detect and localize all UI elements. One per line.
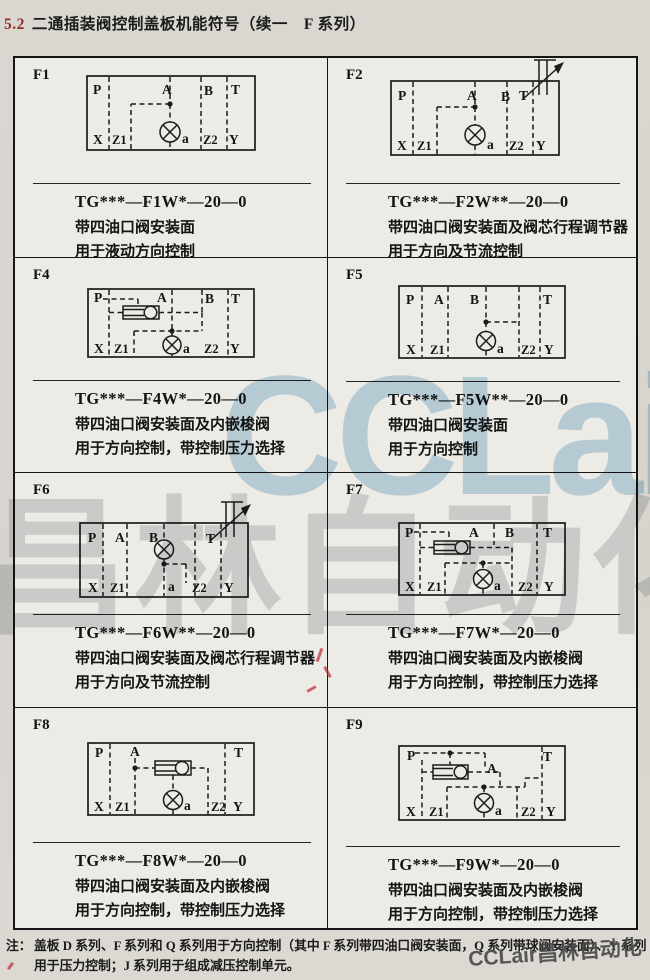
port-label-a: A bbox=[115, 530, 125, 545]
port-label-z1: Z1 bbox=[114, 342, 129, 356]
footnote-body: 盖板 D 系列、F 系列和 Q 系列用于方向控制（其中 F 系列带四油口阀安装面… bbox=[34, 936, 648, 976]
port-label-z2: Z2 bbox=[518, 580, 533, 594]
port-label-b: B bbox=[470, 292, 479, 307]
port-label-y: Y bbox=[229, 132, 239, 147]
cell-f9: F9 bbox=[328, 708, 636, 928]
cell-divider bbox=[346, 381, 620, 382]
cell-f4: F4 P bbox=[15, 258, 328, 473]
cell-id-label: F4 bbox=[33, 267, 50, 284]
f8-schematic: P A T X Z1 a Z2 Y bbox=[86, 741, 256, 817]
port-label-x: X bbox=[405, 579, 415, 594]
port-label-p: P bbox=[407, 748, 415, 763]
port-label-p: P bbox=[93, 82, 101, 97]
port-label-z1: Z1 bbox=[430, 343, 445, 357]
port-label-y: Y bbox=[233, 799, 243, 814]
port-label-z2: Z2 bbox=[521, 805, 536, 819]
cell-id-label: F1 bbox=[33, 67, 50, 84]
port-label-z1: Z1 bbox=[427, 580, 442, 594]
cell-text: TG***—F8W*—20—0 带四油口阀安装面及内嵌梭阀 用于方向控制，带控制… bbox=[75, 851, 285, 923]
pilot-label: a bbox=[183, 341, 190, 356]
model-code: TG***—F4W*—20—0 bbox=[75, 389, 285, 409]
pilot-label: a bbox=[487, 137, 494, 152]
function-symbol-table: F1 P A B T X Z1 a Z2 bbox=[13, 56, 638, 930]
port-label-t: T bbox=[543, 749, 552, 764]
desc-line-1: 带四油口阀安装面及内嵌梭阀 bbox=[75, 413, 285, 437]
port-label-y: Y bbox=[230, 341, 240, 356]
cell-id-label: F2 bbox=[346, 67, 363, 84]
port-label-t: T bbox=[543, 292, 552, 307]
f7-schematic: P A B T X Z1 a Z2 Y bbox=[397, 521, 567, 597]
port-label-b: B bbox=[204, 83, 213, 98]
f4-schematic: P A B T X Z1 a Z2 Y bbox=[86, 287, 256, 359]
port-label-z1: Z1 bbox=[429, 805, 444, 819]
port-label-z2: Z2 bbox=[211, 800, 226, 814]
port-label-t: T bbox=[231, 291, 240, 306]
cell-divider bbox=[346, 183, 620, 184]
cell-f6: F6 P A B bbox=[15, 473, 328, 708]
cell-text: TG***—F1W*—20—0 带四油口阀安装面 用于液动方向控制 bbox=[75, 192, 247, 264]
cell-f5: F5 P A B T X Z1 a Z2 bbox=[328, 258, 636, 473]
port-label-x: X bbox=[94, 799, 104, 814]
cell-id-label: F7 bbox=[346, 482, 363, 499]
port-label-y: Y bbox=[536, 138, 546, 153]
port-label-b: B bbox=[149, 530, 158, 545]
port-label-a: A bbox=[487, 761, 497, 776]
port-label-x: X bbox=[94, 341, 104, 356]
cell-text: TG***—F5W**—20—0 带四油口阀安装面 用于方向控制 bbox=[388, 390, 569, 462]
port-label-p: P bbox=[95, 745, 103, 760]
port-label-z2: Z2 bbox=[521, 343, 536, 357]
port-label-a: A bbox=[469, 525, 479, 540]
port-label-y: Y bbox=[224, 580, 234, 595]
port-label-x: X bbox=[406, 342, 416, 357]
desc-line-2: 用于方向控制，带控制压力选择 bbox=[388, 903, 598, 927]
cell-id-label: F9 bbox=[346, 717, 363, 734]
f6-schematic: P A B T X Z1 a Z2 Y bbox=[78, 497, 264, 599]
pilot-label: a bbox=[497, 341, 504, 356]
cell-f7: F7 P A bbox=[328, 473, 636, 708]
desc-line-2: 用于方向控制，带控制压力选择 bbox=[75, 899, 285, 923]
desc-line-2: 用于方向控制，带控制压力选择 bbox=[388, 671, 598, 695]
port-label-z1: Z1 bbox=[110, 581, 125, 595]
port-label-a: A bbox=[162, 82, 172, 97]
cell-f2: F2 P A B bbox=[328, 58, 636, 258]
cell-text: TG***—F9W*—20—0 带四油口阀安装面及内嵌梭阀 用于方向控制，带控制… bbox=[388, 855, 598, 927]
port-label-b: B bbox=[501, 89, 510, 104]
cell-text: TG***—F2W**—20—0 带四油口阀安装面及阀芯行程调节器 用于方向及节… bbox=[388, 192, 628, 264]
desc-line-1: 带四油口阀安装面 bbox=[75, 216, 247, 240]
cell-id-label: F6 bbox=[33, 482, 50, 499]
page-title: 5.2二通插装阀控制盖板机能符号（续一 F 系列） bbox=[4, 12, 366, 34]
pilot-label: a bbox=[182, 131, 189, 146]
port-label-p: P bbox=[405, 525, 413, 540]
cell-f8: F8 P A T X Z1 bbox=[15, 708, 328, 928]
cell-divider bbox=[33, 614, 311, 615]
pilot-label: a bbox=[495, 803, 502, 818]
model-code: TG***—F6W**—20—0 bbox=[75, 623, 315, 643]
cell-divider bbox=[33, 380, 311, 381]
port-label-x: X bbox=[88, 580, 98, 595]
port-label-z2: Z2 bbox=[204, 342, 219, 356]
footnote-line-2: 用于压力控制；J 系列用于组成减压控制单元。 bbox=[34, 956, 648, 976]
desc-line-2: 用于方向及节流控制 bbox=[75, 671, 315, 695]
desc-line-2: 用于方向控制，带控制压力选择 bbox=[75, 437, 285, 461]
port-label-a: A bbox=[157, 290, 167, 305]
desc-line-1: 带四油口阀安装面及内嵌梭阀 bbox=[75, 875, 285, 899]
cell-divider bbox=[33, 842, 311, 843]
desc-line-1: 带四油口阀安装面及内嵌梭阀 bbox=[388, 647, 598, 671]
cell-divider bbox=[346, 614, 620, 615]
port-label-x: X bbox=[397, 138, 407, 153]
port-label-a: A bbox=[130, 744, 140, 759]
model-code: TG***—F8W*—20—0 bbox=[75, 851, 285, 871]
cell-text: TG***—F7W*—20—0 带四油口阀安装面及内嵌梭阀 用于方向控制，带控制… bbox=[388, 623, 598, 695]
f5-schematic: P A B T X Z1 a Z2 Y bbox=[397, 284, 567, 360]
port-label-y: Y bbox=[544, 579, 554, 594]
footnote-line-1: 盖板 D 系列、F 系列和 Q 系列用于方向控制（其中 F 系列带四油口阀安装面… bbox=[34, 936, 648, 956]
footnote-label: 注： bbox=[6, 936, 34, 976]
port-label-z2: Z2 bbox=[509, 139, 524, 153]
f2-schematic: P A B T X Z1 a Z2 Y bbox=[389, 55, 575, 157]
pilot-label: a bbox=[184, 798, 191, 813]
port-label-z1: Z1 bbox=[115, 800, 130, 814]
desc-line-1: 带四油口阀安装面及阀芯行程调节器 bbox=[75, 647, 315, 671]
cell-text: TG***—F4W*—20—0 带四油口阀安装面及内嵌梭阀 用于方向控制，带控制… bbox=[75, 389, 285, 461]
f9-schematic: P T A X Z1 a Z2 Y bbox=[397, 742, 567, 822]
cell-id-label: F8 bbox=[33, 717, 50, 734]
port-label-t: T bbox=[519, 88, 528, 103]
port-label-z2: Z2 bbox=[192, 581, 207, 595]
port-label-z1: Z1 bbox=[112, 133, 127, 147]
model-code: TG***—F7W*—20—0 bbox=[388, 623, 598, 643]
cell-id-label: F5 bbox=[346, 267, 363, 284]
model-code: TG***—F5W**—20—0 bbox=[388, 390, 569, 410]
cell-divider bbox=[33, 183, 311, 184]
footnote: 注： 盖板 D 系列、F 系列和 Q 系列用于方向控制（其中 F 系列带四油口阀… bbox=[6, 936, 648, 976]
port-label-x: X bbox=[406, 804, 416, 819]
f1-schematic: P A B T X Z1 a Z2 Y bbox=[85, 74, 257, 152]
cell-text: TG***—F6W**—20—0 带四油口阀安装面及阀芯行程调节器 用于方向及节… bbox=[75, 623, 315, 695]
desc-line-1: 带四油口阀安装面 bbox=[388, 414, 569, 438]
port-label-y: Y bbox=[544, 342, 554, 357]
desc-line-1: 带四油口阀安装面及内嵌梭阀 bbox=[388, 879, 598, 903]
cell-f1: F1 P A B T X Z1 a Z2 bbox=[15, 58, 328, 258]
port-label-a: A bbox=[467, 88, 477, 103]
desc-line-1: 带四油口阀安装面及阀芯行程调节器 bbox=[388, 216, 628, 240]
pilot-label: a bbox=[168, 579, 175, 594]
port-label-p: P bbox=[398, 88, 406, 103]
port-label-p: P bbox=[94, 290, 102, 305]
desc-line-2: 用于方向控制 bbox=[388, 438, 569, 462]
port-label-p: P bbox=[406, 292, 414, 307]
port-label-b: B bbox=[505, 525, 514, 540]
port-label-t: T bbox=[231, 82, 240, 97]
scanned-catalog-page: 5.2二通插装阀控制盖板机能符号（续一 F 系列） F1 P A B bbox=[0, 0, 650, 980]
page-title-text: 二通插装阀控制盖板机能符号（续一 F 系列） bbox=[32, 16, 366, 33]
pilot-label: a bbox=[494, 578, 501, 593]
port-label-z2: Z2 bbox=[203, 133, 218, 147]
model-code: TG***—F1W*—20—0 bbox=[75, 192, 247, 212]
model-code: TG***—F2W**—20—0 bbox=[388, 192, 628, 212]
port-label-b: B bbox=[205, 291, 214, 306]
port-label-t: T bbox=[543, 525, 552, 540]
model-code: TG***—F9W*—20—0 bbox=[388, 855, 598, 875]
port-label-t: T bbox=[234, 745, 243, 760]
port-label-z1: Z1 bbox=[417, 139, 432, 153]
port-label-t: T bbox=[206, 531, 215, 546]
section-number: 5.2 bbox=[4, 16, 25, 33]
port-label-x: X bbox=[93, 132, 103, 147]
port-label-a: A bbox=[434, 292, 444, 307]
port-label-p: P bbox=[88, 530, 96, 545]
port-label-y: Y bbox=[546, 804, 556, 819]
cell-divider bbox=[346, 846, 620, 847]
